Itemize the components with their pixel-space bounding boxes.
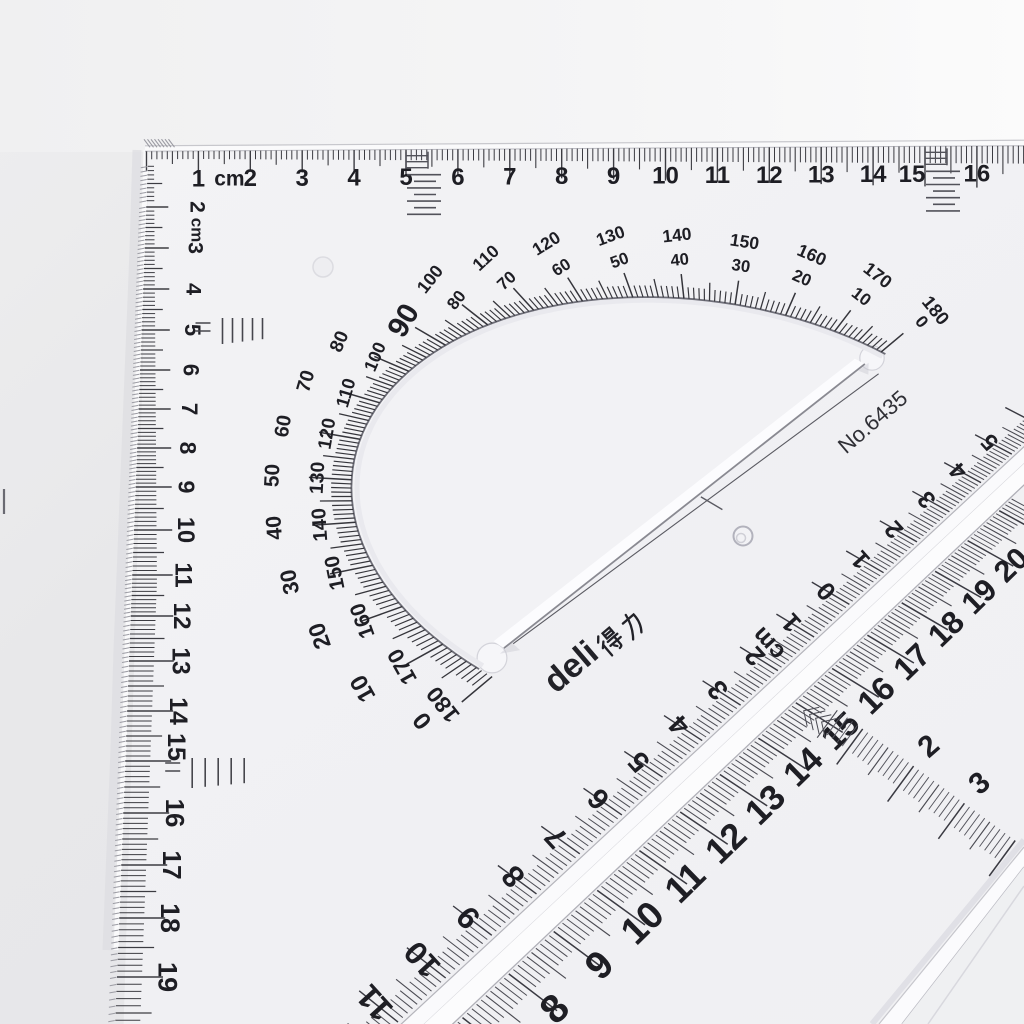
svg-text:3: 3 [184, 242, 208, 254]
svg-text:130: 130 [306, 461, 330, 494]
svg-text:15: 15 [899, 161, 926, 188]
svg-text:16: 16 [160, 799, 188, 828]
svg-text:19: 19 [153, 962, 184, 992]
svg-text:11: 11 [170, 562, 197, 587]
svg-text:8: 8 [175, 442, 201, 455]
svg-text:4: 4 [347, 165, 361, 192]
svg-text:40: 40 [261, 515, 287, 541]
svg-text:17: 17 [157, 850, 187, 879]
svg-text:7: 7 [177, 403, 202, 416]
svg-text:10: 10 [172, 517, 198, 543]
svg-text:10: 10 [652, 163, 679, 190]
svg-text:7: 7 [503, 164, 516, 191]
svg-text:16: 16 [964, 161, 991, 188]
svg-text:13: 13 [167, 647, 194, 674]
svg-text:11: 11 [705, 162, 730, 189]
svg-text:cm: cm [214, 168, 244, 191]
svg-text:13: 13 [808, 162, 835, 189]
svg-text:9: 9 [607, 163, 620, 190]
svg-text:cm: cm [188, 218, 207, 243]
svg-text:12: 12 [756, 162, 783, 189]
svg-text:3: 3 [296, 165, 309, 192]
svg-text:30: 30 [275, 567, 304, 596]
svg-text:30: 30 [730, 255, 751, 277]
svg-text:15: 15 [162, 733, 190, 761]
svg-text:60: 60 [271, 413, 296, 439]
svg-text:5: 5 [180, 324, 205, 336]
svg-text:12: 12 [168, 602, 195, 629]
svg-text:6: 6 [451, 164, 464, 191]
svg-text:9: 9 [174, 481, 200, 494]
svg-text:40: 40 [669, 249, 689, 270]
svg-text:140: 140 [308, 507, 332, 542]
svg-text:140: 140 [661, 223, 692, 246]
svg-text:2: 2 [186, 201, 209, 213]
svg-text:6: 6 [179, 364, 204, 376]
svg-text:50: 50 [260, 463, 284, 487]
svg-text:18: 18 [155, 903, 185, 933]
svg-text:2: 2 [244, 165, 257, 192]
svg-text:4: 4 [182, 283, 207, 295]
svg-text:1: 1 [192, 166, 205, 193]
svg-text:8: 8 [555, 163, 568, 190]
svg-text:14: 14 [164, 697, 192, 725]
svg-text:14: 14 [860, 161, 887, 188]
